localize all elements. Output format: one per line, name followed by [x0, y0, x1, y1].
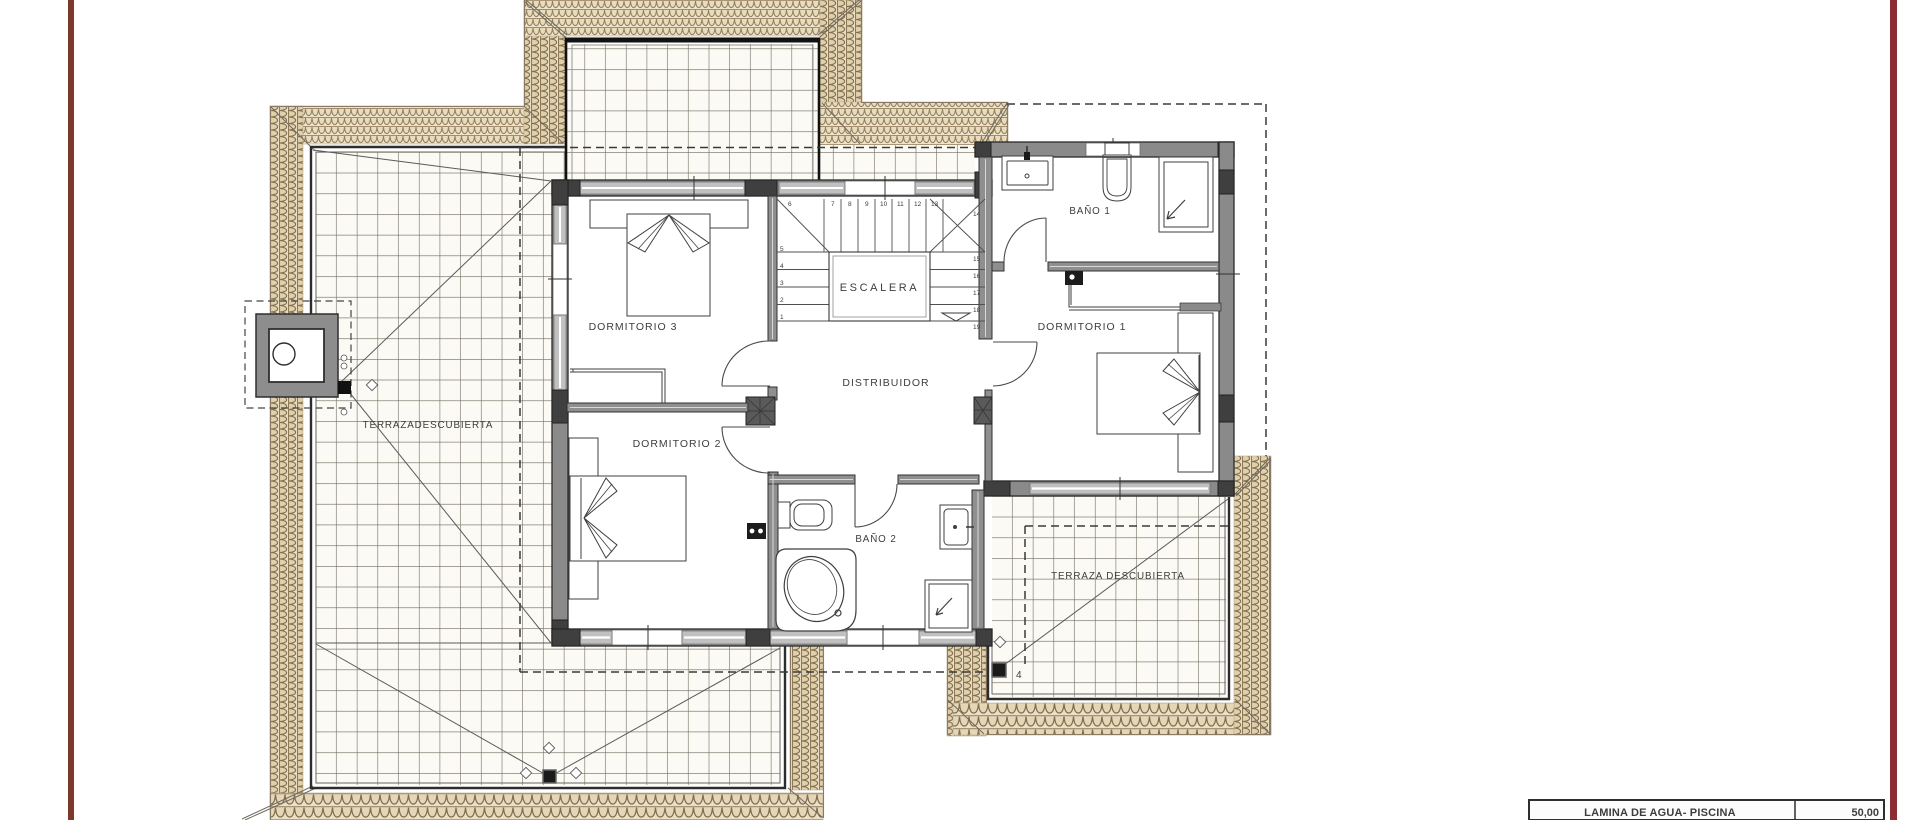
svg-text:2: 2: [780, 297, 784, 304]
svg-text:7: 7: [831, 201, 835, 208]
svg-text:9: 9: [865, 201, 869, 208]
svg-text:4: 4: [1016, 670, 1022, 681]
svg-text:1: 1: [780, 314, 784, 321]
svg-text:10: 10: [880, 201, 888, 208]
svg-text:12: 12: [914, 201, 922, 208]
svg-text:13: 13: [931, 201, 939, 208]
svg-text:LAMINA DE AGUA- PISCINA: LAMINA DE AGUA- PISCINA: [1584, 807, 1736, 819]
svg-text:TERRAZA DESCUBIERTA: TERRAZA DESCUBIERTA: [1051, 571, 1185, 582]
svg-text:DORMITORIO 3: DORMITORIO 3: [589, 321, 678, 333]
svg-text:DORMITORIO 1: DORMITORIO 1: [1038, 321, 1127, 333]
svg-text:DISTRIBUIDOR: DISTRIBUIDOR: [842, 377, 929, 389]
svg-text:19: 19: [973, 324, 981, 331]
svg-text:BAÑO 2: BAÑO 2: [855, 534, 896, 545]
svg-text:14: 14: [973, 211, 981, 218]
svg-text:50,00: 50,00: [1851, 807, 1879, 819]
svg-text:TERRAZADESCUBIERTA: TERRAZADESCUBIERTA: [363, 420, 494, 431]
svg-text:ESCALERA: ESCALERA: [840, 282, 920, 294]
svg-text:18: 18: [973, 307, 981, 314]
svg-text:4: 4: [780, 263, 784, 270]
svg-text:15: 15: [973, 256, 981, 263]
svg-text:17: 17: [973, 290, 981, 297]
svg-text:11: 11: [897, 201, 904, 208]
svg-text:DORMITORIO 2: DORMITORIO 2: [633, 438, 722, 450]
svg-text:16: 16: [973, 273, 981, 280]
svg-text:5: 5: [780, 246, 784, 253]
svg-text:3: 3: [780, 280, 784, 287]
svg-text:6: 6: [788, 201, 792, 208]
svg-text:8: 8: [848, 201, 852, 208]
svg-text:BAÑO 1: BAÑO 1: [1069, 206, 1110, 217]
